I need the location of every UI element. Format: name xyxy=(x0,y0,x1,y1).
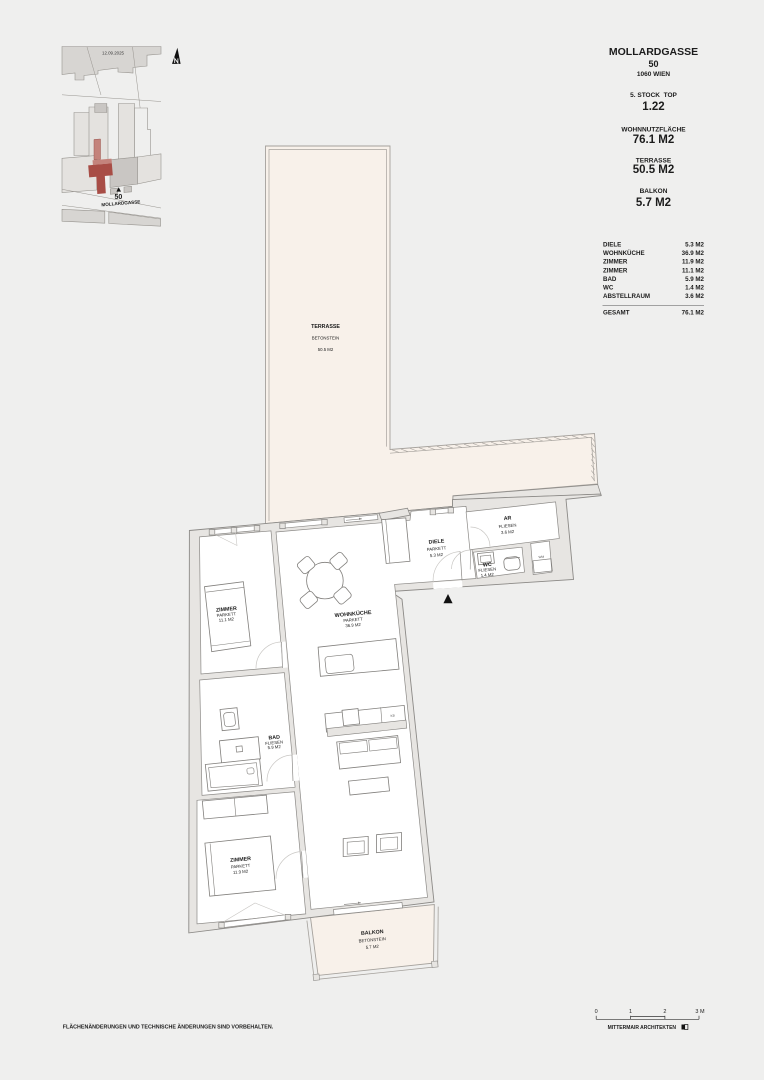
svg-text:ZIMMER: ZIMMER xyxy=(603,259,628,266)
svg-text:5.3 M2: 5.3 M2 xyxy=(685,242,704,249)
svg-text:76.1 M2: 76.1 M2 xyxy=(633,134,675,146)
svg-text:50: 50 xyxy=(115,194,123,201)
svg-text:KB: KB xyxy=(390,714,395,718)
svg-text:FLÄCHENÄNDERUNGEN UND TECHNISC: FLÄCHENÄNDERUNGEN UND TECHNISCHE ÄNDERUN… xyxy=(63,1023,274,1030)
svg-text:BALKON: BALKON xyxy=(640,188,668,195)
svg-text:2: 2 xyxy=(663,1009,666,1015)
svg-text:ZIMMER: ZIMMER xyxy=(603,267,628,274)
svg-text:WC: WC xyxy=(603,285,614,292)
svg-text:WOHNKÜCHE: WOHNKÜCHE xyxy=(603,250,645,257)
svg-text:MOLLARDGASSE: MOLLARDGASSE xyxy=(101,199,140,207)
svg-text:5.7 M2: 5.7 M2 xyxy=(636,197,671,209)
svg-text:GESAMT: GESAMT xyxy=(603,310,630,317)
svg-text:1: 1 xyxy=(629,1009,632,1015)
svg-text:ABSTELLRAUM: ABSTELLRAUM xyxy=(603,293,650,300)
svg-text:AR: AR xyxy=(504,515,512,522)
svg-text:3.6 M2: 3.6 M2 xyxy=(685,293,704,300)
svg-text:50.5 M2: 50.5 M2 xyxy=(633,164,675,176)
svg-text:BETONSTEIN: BETONSTEIN xyxy=(312,336,339,341)
svg-text:1060 WIEN: 1060 WIEN xyxy=(637,71,671,78)
svg-text:1.22: 1.22 xyxy=(642,101,664,113)
svg-text:11.1 M2: 11.1 M2 xyxy=(682,267,705,274)
svg-text:5.9 M2: 5.9 M2 xyxy=(685,276,704,283)
svg-text:MOLLARDGASSE: MOLLARDGASSE xyxy=(609,46,698,58)
svg-text:36.9 M2: 36.9 M2 xyxy=(682,250,705,257)
svg-text:WOHNNUTZFLÄCHE: WOHNNUTZFLÄCHE xyxy=(621,126,686,134)
svg-text:50: 50 xyxy=(648,59,658,69)
svg-text:TERRASSE: TERRASSE xyxy=(311,324,340,330)
svg-text:11.9 M2: 11.9 M2 xyxy=(682,259,705,266)
svg-text:1.4 M2: 1.4 M2 xyxy=(685,285,704,292)
svg-text:0: 0 xyxy=(595,1009,598,1015)
svg-text:12.09.2025: 12.09.2025 xyxy=(102,51,125,56)
svg-text:50.5 M2: 50.5 M2 xyxy=(318,347,334,352)
svg-text:5. STOCK TOP: 5. STOCK TOP xyxy=(630,92,677,99)
svg-text:BAD: BAD xyxy=(603,276,617,283)
svg-text:76.1 M2: 76.1 M2 xyxy=(682,310,705,317)
svg-text:DIELE: DIELE xyxy=(603,242,621,249)
svg-text:3 M: 3 M xyxy=(695,1009,705,1015)
svg-text:WM: WM xyxy=(538,555,544,560)
svg-text:MITTERMAIR ARCHITEKTEN: MITTERMAIR ARCHITEKTEN xyxy=(608,1025,677,1031)
